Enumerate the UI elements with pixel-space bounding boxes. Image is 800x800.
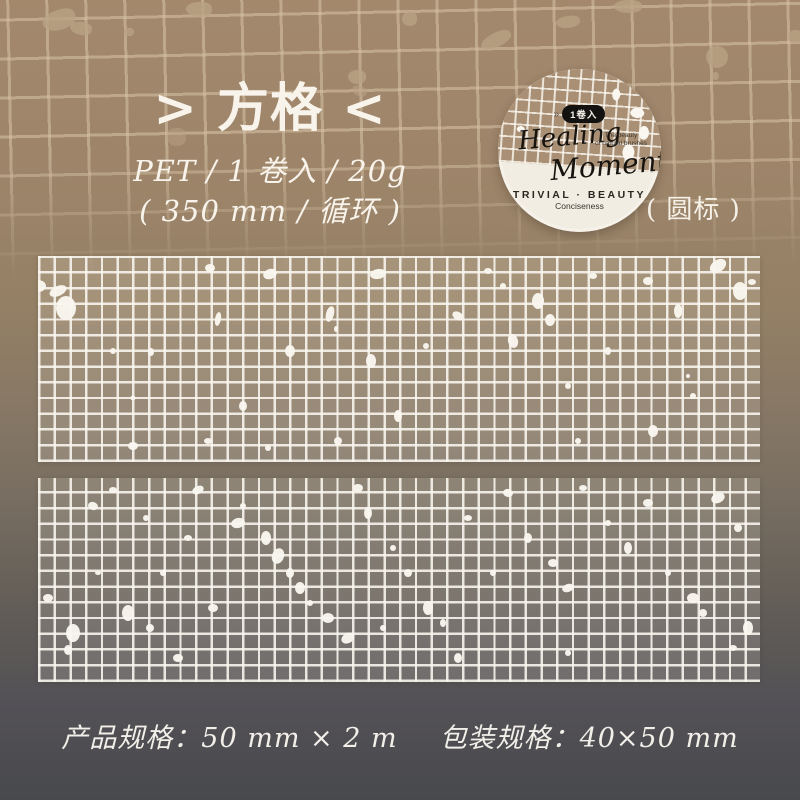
product-length-spec: ( 350 mm / 循环 ) (40, 191, 500, 231)
roll-tagline: The beauty of natural brushes (592, 132, 650, 147)
background-splatter (614, 0, 642, 13)
roll-caption: ( 圆标 ) (646, 189, 741, 226)
brand-text: TRIVIAL · BEAUTY (498, 189, 661, 201)
footer-specs: 产品规格：50 mm × 2 m包装规格：40×50 mm (0, 716, 800, 755)
background-splatter (706, 46, 728, 68)
roll-tagline-line1: The beauty (592, 132, 650, 140)
header-block: > 方格 < PET / 1 卷入 / 20g ( 350 mm / 循环 ) (40, 66, 500, 231)
tape-splatter-pattern (38, 256, 760, 462)
background-splatter (712, 72, 719, 80)
product-material-spec: PET / 1 卷入 / 20g (40, 151, 500, 191)
tape-roll-label: »1卷入 Healing Moment The beauty of natura… (498, 69, 661, 232)
tape-strip-2 (38, 478, 760, 682)
page-title: > 方格 < (40, 66, 500, 141)
tape-strip-1 (38, 256, 760, 462)
chevrons-icon: » (554, 109, 560, 120)
brand-subtext: Conciseness (498, 201, 661, 211)
background-splatter (124, 28, 134, 36)
background-splatter (788, 30, 800, 43)
product-poster: > 方格 < PET / 1 卷入 / 20g ( 350 mm / 循环 ) … (0, 0, 800, 800)
background-splatter (402, 12, 417, 26)
package-spec-text: 包装规格：40×50 mm (440, 723, 739, 754)
roll-tagline-line2: of natural brushes (592, 140, 650, 148)
product-spec-text: 产品规格：50 mm × 2 m (61, 723, 397, 754)
tape-splatter-pattern (38, 478, 760, 682)
background-splatter (186, 2, 212, 17)
